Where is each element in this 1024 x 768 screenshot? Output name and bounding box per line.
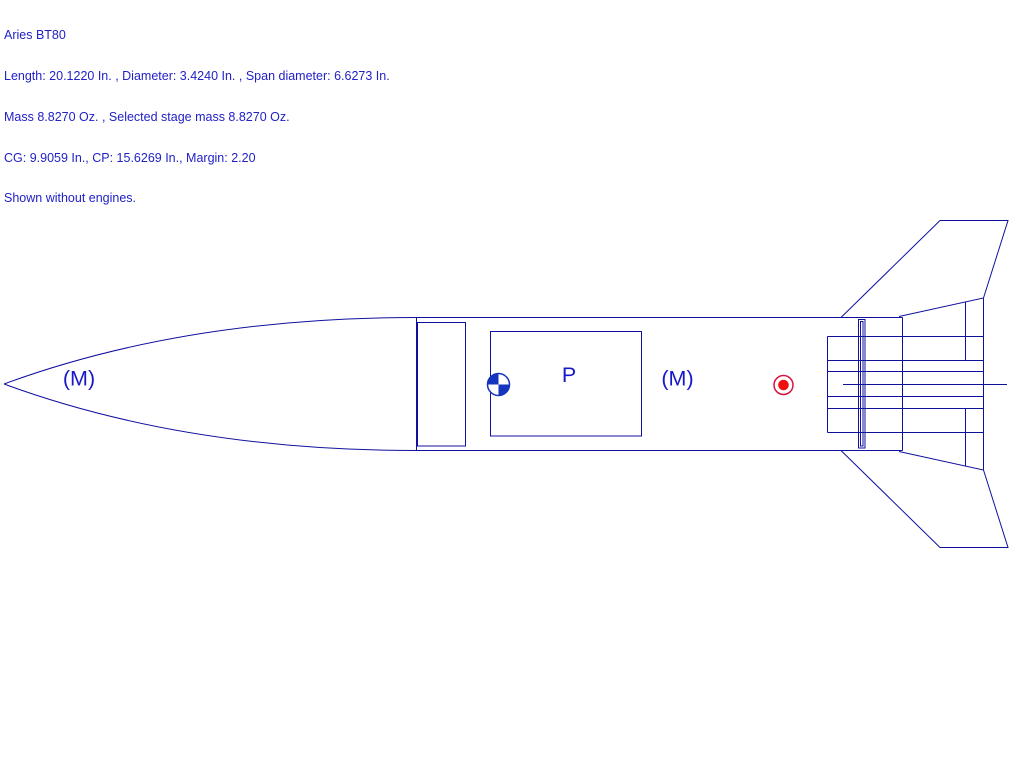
launch-lug (859, 320, 866, 449)
fin-lower (841, 451, 1008, 548)
cg-marker-icon (488, 374, 510, 396)
nose-mass-label: (M) (63, 367, 95, 391)
nose-shoulder (418, 323, 466, 447)
parachute-label: P (562, 363, 576, 387)
rocket-diagram: (M) P (M) (0, 0, 1024, 768)
fin-upper (841, 221, 1008, 318)
cp-marker-icon (774, 376, 793, 395)
rocket-design-view: Aries BT80 Length: 20.1220 In. , Diamete… (0, 0, 1024, 768)
body-mass-label: (M) (661, 367, 693, 391)
